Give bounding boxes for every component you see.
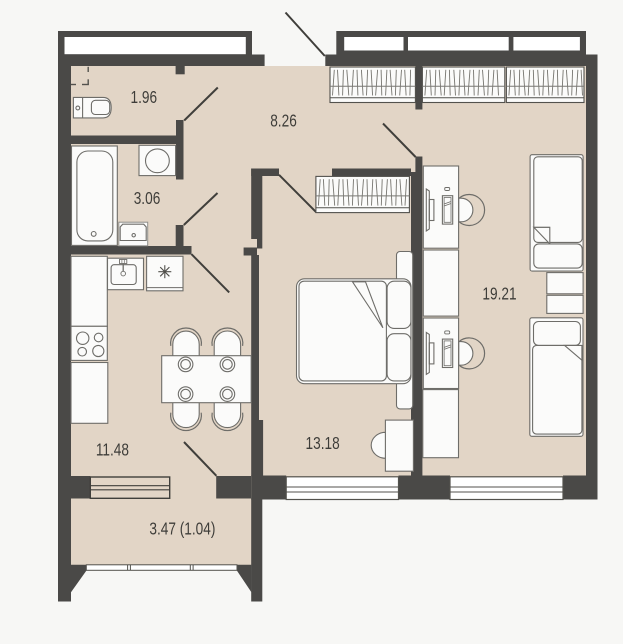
svg-text:13.18: 13.18 [306, 435, 340, 454]
svg-text:8.26: 8.26 [270, 112, 297, 131]
svg-text:19.21: 19.21 [482, 285, 516, 304]
svg-text:3.47 (1.04): 3.47 (1.04) [149, 520, 215, 539]
svg-text:1.96: 1.96 [131, 89, 158, 108]
svg-text:3.06: 3.06 [134, 190, 161, 209]
svg-text:11.48: 11.48 [96, 441, 129, 460]
